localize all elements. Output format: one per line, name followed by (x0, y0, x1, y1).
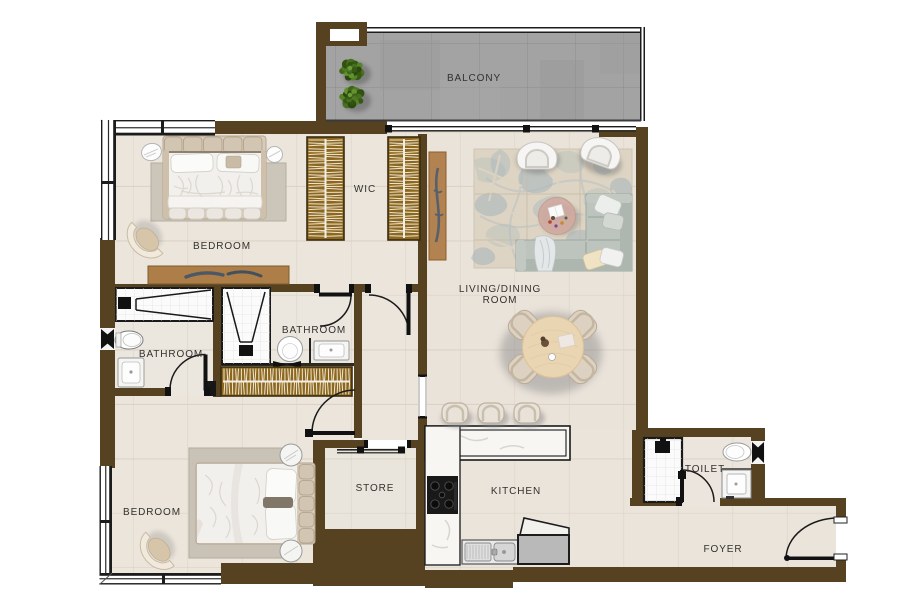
svg-text:FOYER: FOYER (704, 544, 743, 555)
svg-text:KITCHEN: KITCHEN (491, 486, 541, 497)
svg-text:BALCONY: BALCONY (447, 73, 501, 84)
svg-text:TOILET: TOILET (685, 464, 725, 475)
svg-text:BEDROOM: BEDROOM (193, 241, 251, 252)
svg-text:ROOM: ROOM (483, 295, 518, 306)
svg-text:BATHROOM: BATHROOM (282, 325, 346, 336)
svg-text:BEDROOM: BEDROOM (123, 507, 181, 518)
svg-text:WIC: WIC (354, 184, 376, 195)
svg-text:STORE: STORE (356, 483, 395, 494)
svg-text:LIVING/DINING: LIVING/DINING (459, 284, 541, 295)
svg-text:BATHROOM: BATHROOM (139, 349, 203, 360)
